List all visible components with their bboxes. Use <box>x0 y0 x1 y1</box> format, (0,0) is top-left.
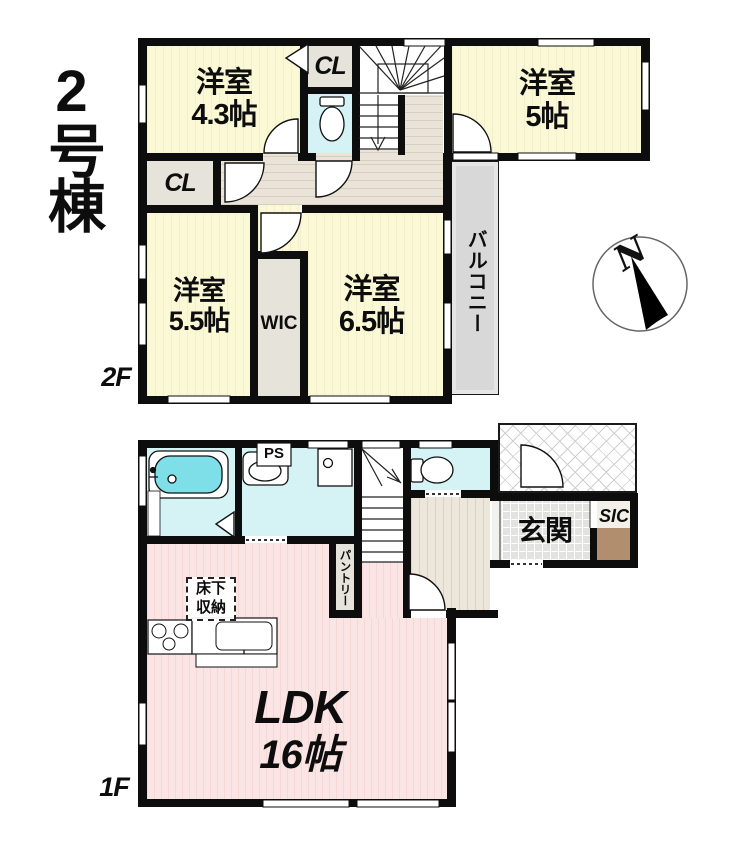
room-5-5-label: 洋室 5.5帖 <box>145 262 253 350</box>
sic-lower-floor <box>597 528 630 560</box>
closet-top-label: CL <box>308 50 352 82</box>
room-4-3-label: 洋室 4.3帖 <box>150 55 298 143</box>
compass: N <box>593 228 687 331</box>
closet-left-label: CL <box>147 166 213 200</box>
floor2-label: 2F <box>92 362 140 392</box>
hall-1f-floor <box>411 497 490 611</box>
room-5-label: 洋室 5帖 <box>458 58 636 143</box>
toilet-1f-floor <box>411 448 490 490</box>
bathroom-floor <box>147 448 235 536</box>
compass-circle <box>593 237 687 331</box>
stairs-1f <box>362 449 403 562</box>
sic-label: SIC <box>596 504 632 528</box>
ldk-floor-stairfoot <box>362 562 403 618</box>
room-6-5-label: 洋室 6.5帖 <box>300 262 443 350</box>
pantry-label: パントリー <box>334 546 354 610</box>
toilet-2f-floor <box>308 94 352 153</box>
porch-floor <box>498 423 637 493</box>
north-needle <box>631 256 668 330</box>
ldk-label: LDK 16帖 <box>180 688 420 772</box>
hall-2f-floor-stairfoot <box>359 150 405 161</box>
floor-plan-page: N 2号棟 2F 1F 洋室 4.3帖 CL 洋室 5帖 CL 洋室 5.5帖 … <box>0 0 740 846</box>
north-label: N <box>606 228 656 280</box>
ps-label: PS <box>257 443 291 466</box>
balcony-label: バルコニー <box>461 206 489 356</box>
floor-storage-label: 床下 収納 <box>186 577 236 621</box>
page-title: 2号棟 <box>36 40 106 250</box>
room-6-5-vestibule-floor <box>258 205 300 251</box>
floor1-label: 1F <box>90 772 138 802</box>
hall-2f-floor-upper <box>405 95 443 161</box>
genkan-label: 玄関 <box>503 514 587 548</box>
wic-label: WIC <box>255 312 303 336</box>
